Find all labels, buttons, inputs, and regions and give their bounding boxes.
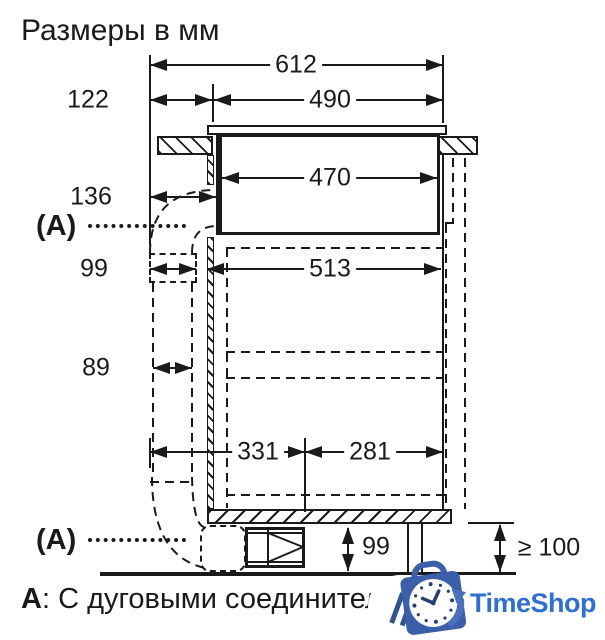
dim-label-total: 612 <box>270 51 322 79</box>
arrowhead-icon <box>150 191 167 203</box>
extension-line-left <box>149 55 151 245</box>
dim-label-duct-width: 89 <box>77 354 115 382</box>
arrowhead-icon <box>426 94 443 106</box>
arrowhead-icon <box>175 362 192 374</box>
arrowhead-icon <box>222 172 239 184</box>
arrowhead-icon <box>305 446 322 458</box>
arrowhead-icon <box>195 94 212 106</box>
blower-symbol <box>245 528 305 567</box>
timeshop-brand-text[interactable]: TimeShop <box>470 588 596 619</box>
arrowhead-icon <box>207 263 224 275</box>
arrowhead-icon <box>150 94 167 106</box>
arrowhead-icon <box>494 524 506 541</box>
arrowhead-icon <box>426 59 443 71</box>
arrowhead-icon <box>342 554 354 571</box>
dim-label-cutout-depth: 490 <box>304 86 356 114</box>
callout-a-top: (A) <box>36 212 76 241</box>
callout-a-bottom: (A) <box>36 526 76 555</box>
arrowhead-icon <box>420 172 437 184</box>
arrowhead-icon <box>214 94 231 106</box>
arrowhead-icon <box>150 263 167 275</box>
arrowhead-icon <box>342 527 354 544</box>
arrowhead-icon <box>288 446 305 458</box>
extension-line-plinth-top <box>468 522 514 524</box>
footnote: А: С дуговыми соединителям <box>21 584 417 616</box>
dim-label-front-offset: 122 <box>62 86 114 114</box>
arrowhead-icon <box>199 191 216 203</box>
duct-elbow-top-inner <box>192 226 217 253</box>
arrowhead-icon <box>426 446 443 458</box>
dim-label-plinth-height: ≥ 100 <box>513 534 585 562</box>
callout-leader-bottom <box>88 538 186 542</box>
duct-elbow-bottom-outer <box>152 477 205 568</box>
footnote-text: : С дуговыми соединителям <box>42 583 418 615</box>
arrowhead-icon <box>150 446 167 458</box>
dim-label-body-depth: 470 <box>304 164 356 192</box>
arrowhead-icon <box>179 263 196 275</box>
duct-elbow-bottom-inner <box>192 477 204 527</box>
callout-leader-top <box>88 224 186 228</box>
dim-label-rear-span: 331 <box>232 438 284 466</box>
installation-dimension-diagram: Размеры в мм <box>0 0 605 640</box>
dim-label-duct-coupling: 99 <box>75 255 113 283</box>
arrowhead-icon <box>424 263 441 275</box>
arrowhead-icon <box>150 59 167 71</box>
dim-label-left-clearance: 136 <box>65 183 117 211</box>
footnote-label: А <box>21 583 42 615</box>
dim-label-front-span: 281 <box>344 438 396 466</box>
arrowhead-icon <box>153 362 170 374</box>
dim-label-lower-body-depth: 513 <box>304 255 356 283</box>
